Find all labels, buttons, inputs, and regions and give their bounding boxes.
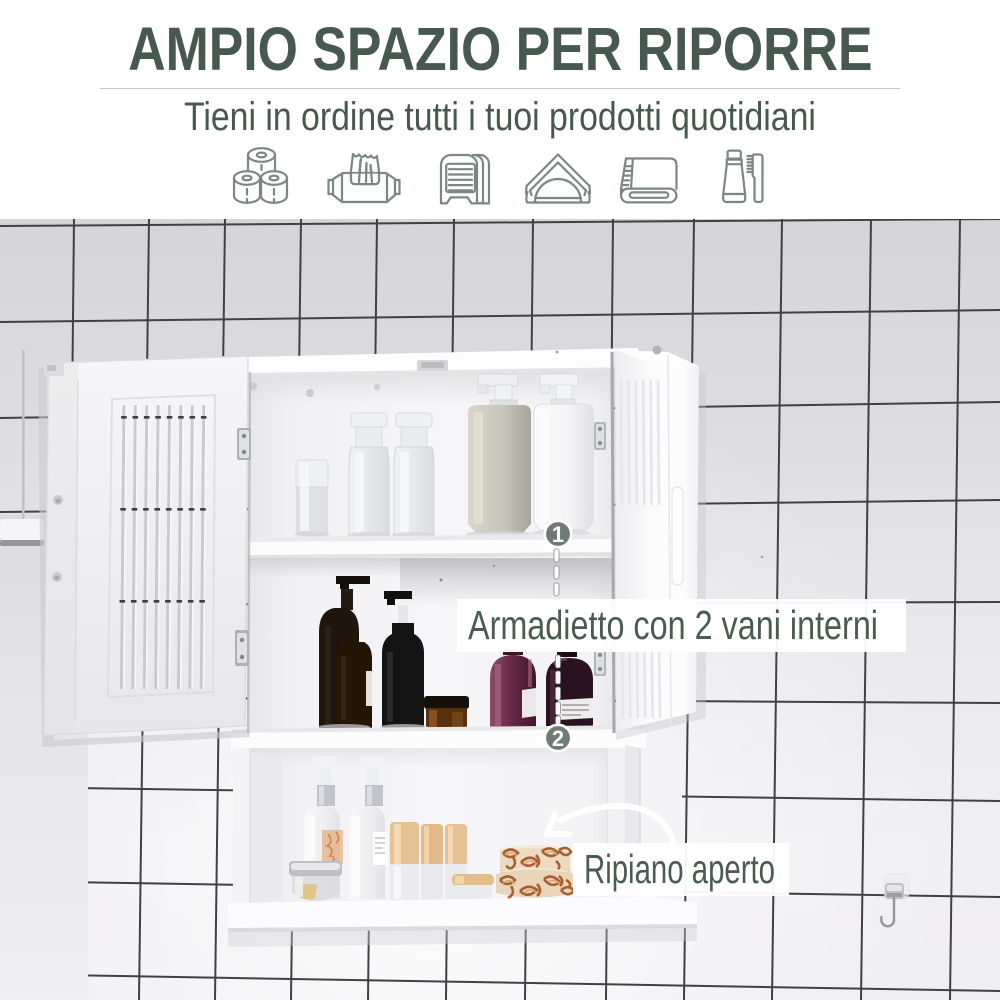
svg-text:Armadietto con 2 vani interni: Armadietto con 2 vani interni: [468, 602, 878, 648]
svg-text:Ripiano aperto: Ripiano aperto: [584, 846, 775, 892]
svg-text:1: 1: [552, 522, 564, 547]
svg-text:2: 2: [552, 726, 564, 751]
